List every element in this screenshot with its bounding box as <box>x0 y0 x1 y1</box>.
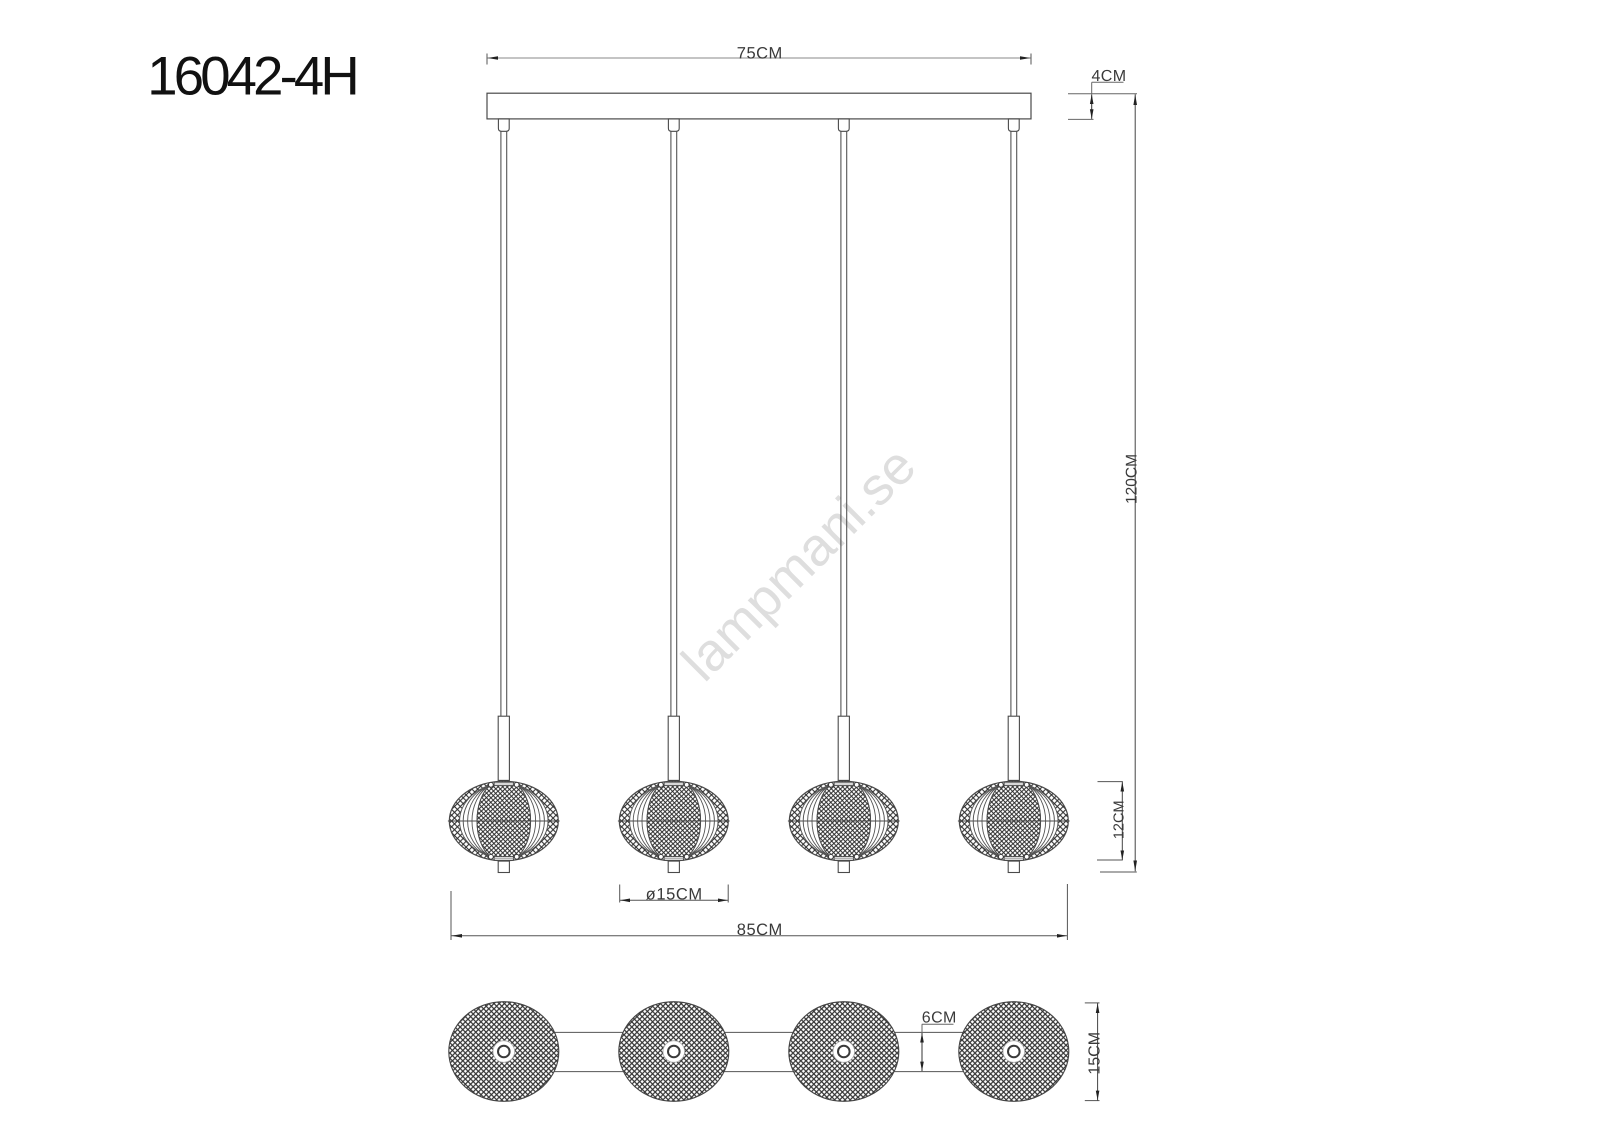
svg-text:16042-4H: 16042-4H <box>147 46 356 107</box>
svg-text:lampmani.se: lampmani.se <box>671 436 927 692</box>
svg-text:ø15CM: ø15CM <box>646 886 703 904</box>
svg-text:75CM: 75CM <box>737 45 783 63</box>
svg-text:120CM: 120CM <box>1124 454 1141 504</box>
svg-text:15CM: 15CM <box>1086 1032 1103 1075</box>
svg-text:85CM: 85CM <box>737 921 783 939</box>
svg-text:12CM: 12CM <box>1112 800 1128 839</box>
